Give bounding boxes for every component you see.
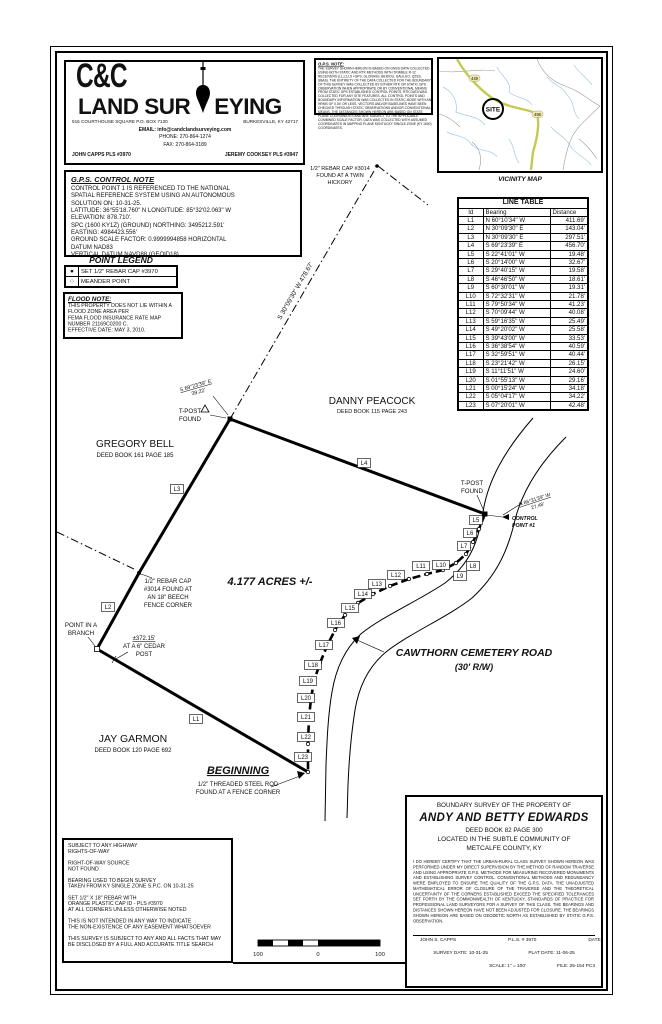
company-surveyors: JOHN CAPPS PLS #3970 JEREMY COOKSEY PLS … — [72, 152, 298, 160]
drawing-scale: SCALE: 1" = 100' — [413, 963, 557, 969]
line-table-row: L17S 32°59'51" W40.44' — [459, 351, 587, 359]
survey-notes-body: SUBJECT TO ANY HIGHWAY RIGHTS-OF-WAY RIG… — [68, 843, 231, 948]
company-logo-text: C&C — [76, 57, 127, 96]
flood-note-title: FLOOD NOTE: — [68, 296, 178, 303]
company-address-left: 516 COURTHOUSE SQUARE P.O. BOX 7130 — [72, 119, 168, 125]
line-table-row: L23S 07°20'01" W42.48' — [459, 401, 587, 409]
title-block-owner: ANDY AND BETTY EDWARDS — [407, 812, 601, 824]
point-legend-table: ●SET 1/2" REBAR CAP #3970○MEANDER POINT — [64, 265, 178, 288]
vicinity-map-graphic: 449 496 SITE — [439, 59, 600, 170]
certification-text: I DO HEREBY CERTIFY THAT THE URBAN-RURAL… — [413, 859, 594, 924]
filled-circle-icon: ● — [66, 267, 79, 276]
point-legend-row: ○MEANDER POINT — [66, 276, 176, 286]
gps-note-body: THE SURVEY SHOWN HEREON IS BASED ON GNSS… — [318, 67, 432, 130]
gps-control-note-title: G.P.S. CONTROL NOTE — [71, 175, 295, 184]
line-table-body: L1N 60°10'34" W411.69'L2N 30°09'30" E143… — [459, 216, 587, 409]
line-table-row: L10S 72°32'31" W21.78' — [459, 292, 587, 300]
line-table-row: L5S 22°41'01" W19.48' — [459, 250, 587, 258]
open-circle-icon: ○ — [66, 277, 79, 286]
company-name: LAND SUREYING — [78, 94, 304, 120]
gps-note-box: G.P.S. NOTE: THE SURVEY SHOWN HEREON IS … — [314, 58, 433, 115]
point-legend-label: SET 1/2" REBAR CAP #3970 — [79, 269, 158, 275]
line-table-row: L1N 60°10'34" W411.69' — [459, 216, 587, 224]
signature-line: JOHN S. CAPPS P.L.S. # 3970 DATE: — [413, 935, 595, 945]
line-table-row: L14S 49°20'02" W25.58' — [459, 326, 587, 334]
company-name-left: LAND SUR — [78, 94, 190, 119]
company-address-right: BURKESVILLE, KY 42717 — [243, 119, 298, 125]
line-table-row: L3N 30°09'30" E297.51' — [459, 233, 587, 241]
line-table-col-bearing: Bearing — [483, 209, 550, 217]
signer-name: JOHN S. CAPPS — [420, 937, 456, 943]
line-table-header: Id Bearing Distance — [459, 209, 587, 217]
line-table-row: L18S 23°21'42" W26.15' — [459, 359, 587, 367]
vicinity-highway — [457, 59, 538, 170]
title-block: BOUNDARY SURVEY OF THE PROPERTY OF ANDY … — [405, 795, 603, 988]
point-legend-row: ●SET 1/2" REBAR CAP #3970 — [66, 267, 176, 276]
survey-date: SURVEY DATE: 10-31-25 — [433, 950, 488, 956]
surveyor-name-left: JOHN CAPPS PLS #3970 — [72, 152, 131, 158]
line-table-title: LINE TABLE — [459, 199, 587, 209]
title-block-deed: DEED BOOK 82 PAGE 300 — [407, 827, 601, 834]
line-table-row: L22S 05°04'17" W34.22' — [459, 393, 587, 401]
surveyor-name-right: JEREMY COOKSEY PLS #3947 — [225, 152, 298, 158]
survey-plat-sheet: GREGORY BELL DEED BOOK 161 PAGE 185 DANN… — [0, 0, 662, 1024]
title-block-location-2: METCALFE COUNTY, KY — [407, 845, 601, 852]
line-table-col-id: Id — [459, 209, 483, 217]
plat-dates-row: SURVEY DATE: 10-31-25 PLAT DATE: 11-06-2… — [413, 950, 595, 959]
survey-notes-box: SUBJECT TO ANY HIGHWAY RIGHTS-OF-WAY RIG… — [62, 838, 233, 963]
date-label: DATE: — [588, 937, 602, 943]
signer-pls: P.L.S. # 3970 — [508, 937, 536, 943]
line-table-row: L9S 60°30'01" W19.31' — [459, 284, 587, 292]
line-table-row: L12S 70°09'44" W40.08' — [459, 309, 587, 317]
flood-note-box: FLOOD NOTE: THIS PROPERTY DOES NOT LIE W… — [63, 292, 183, 339]
point-legend-label: MEANDER POINT — [79, 279, 130, 285]
point-legend-title: POINT LEGEND — [64, 255, 178, 265]
company-fax: FAX: 270-864-3189 — [72, 142, 298, 150]
line-table-row: L8S 46°46'50" W18.61' — [459, 275, 587, 283]
scale-file-row: SCALE: 1" = 100' FILE: 25-154 PC3 — [413, 963, 595, 972]
line-table-row: L13S 59°16'35" W25.49' — [459, 317, 587, 325]
line-table-col-distance: Distance — [550, 209, 587, 217]
vicinity-streams — [443, 65, 592, 165]
line-table-row: L6S 20°14'00" W32.67' — [459, 258, 587, 266]
line-table-row: L2N 30°09'30" E143.04' — [459, 225, 587, 233]
gps-control-note-box: G.P.S. CONTROL NOTE CONTROL POINT 1 IS R… — [64, 170, 302, 257]
vicinity-map-caption: VICINITY MAP — [437, 176, 603, 183]
line-table-row: L16S 36°38'54" W40.59' — [459, 343, 587, 351]
line-table-row: L19S 11°11'51" W24.60' — [459, 368, 587, 376]
plat-date: PLAT DATE: 11-06-25 — [528, 950, 574, 956]
flood-note-body: THIS PROPERTY DOES NOT LIE WITHIN A FLOO… — [68, 303, 181, 334]
line-table-row: L7S 29°40'15" W19.58' — [459, 267, 587, 275]
svg-text:496: 496 — [534, 112, 542, 117]
company-name-right: EYING — [214, 94, 282, 119]
line-table-row: L15S 39°43'00" W33.53' — [459, 334, 587, 342]
gps-control-note-body: CONTROL POINT 1 IS REFERENCED TO THE NAT… — [71, 186, 295, 259]
site-marker-label: SITE — [486, 107, 501, 114]
title-block-location-1: LOCATED IN THE SUBTLE COMMUNITY OF — [407, 836, 601, 843]
gps-note-title: G.P.S. NOTE: — [318, 62, 429, 67]
line-table-row: L20S 01°55'13" W29.16' — [459, 376, 587, 384]
plumb-bob-icon — [194, 60, 212, 122]
vicinity-map: 449 496 SITE — [437, 57, 603, 173]
line-table: LINE TABLE Id Bearing Distance L1N 60°10… — [457, 197, 589, 411]
line-table-row: L21S 00°15'24" W34.18' — [459, 385, 587, 393]
line-table-row: L11S 79°50'34" W41.23' — [459, 300, 587, 308]
title-block-header: BOUNDARY SURVEY OF THE PROPERTY OF — [407, 802, 601, 809]
line-table-row: L4S 69°23'39" E456.70' — [459, 242, 587, 250]
svg-text:449: 449 — [471, 76, 479, 81]
file-number: FILE: 25-154 PC3 — [557, 963, 595, 969]
